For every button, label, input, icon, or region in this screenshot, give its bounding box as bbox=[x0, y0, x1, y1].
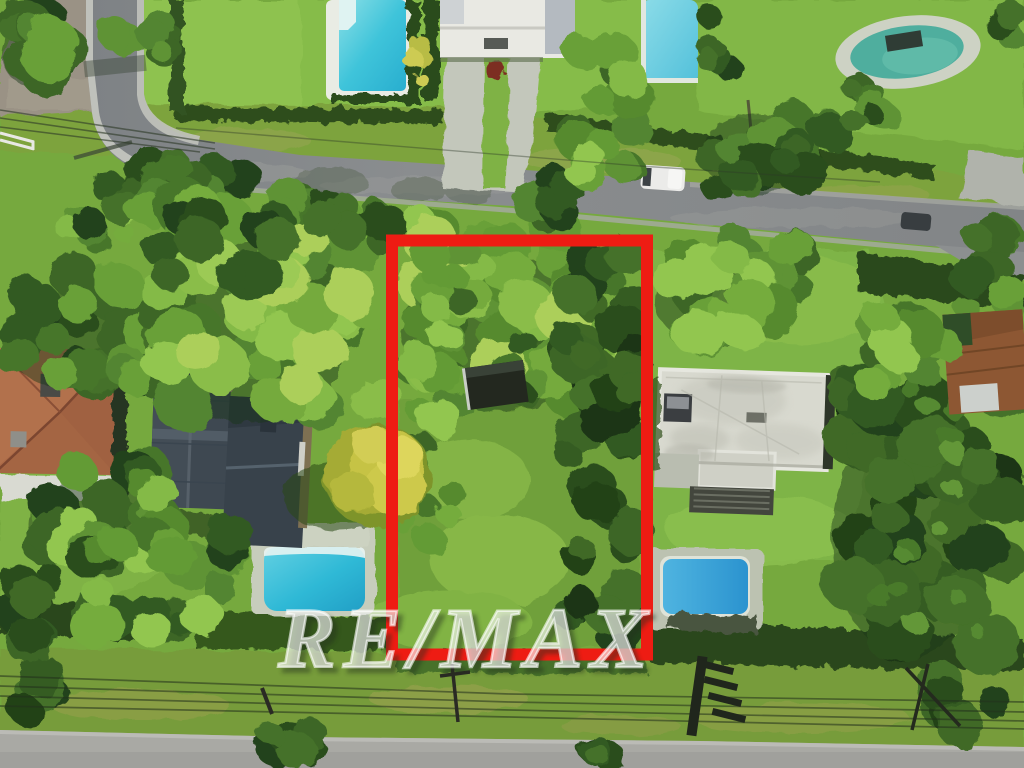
svg-text:RE/MAX: RE/MAX bbox=[277, 590, 656, 686]
